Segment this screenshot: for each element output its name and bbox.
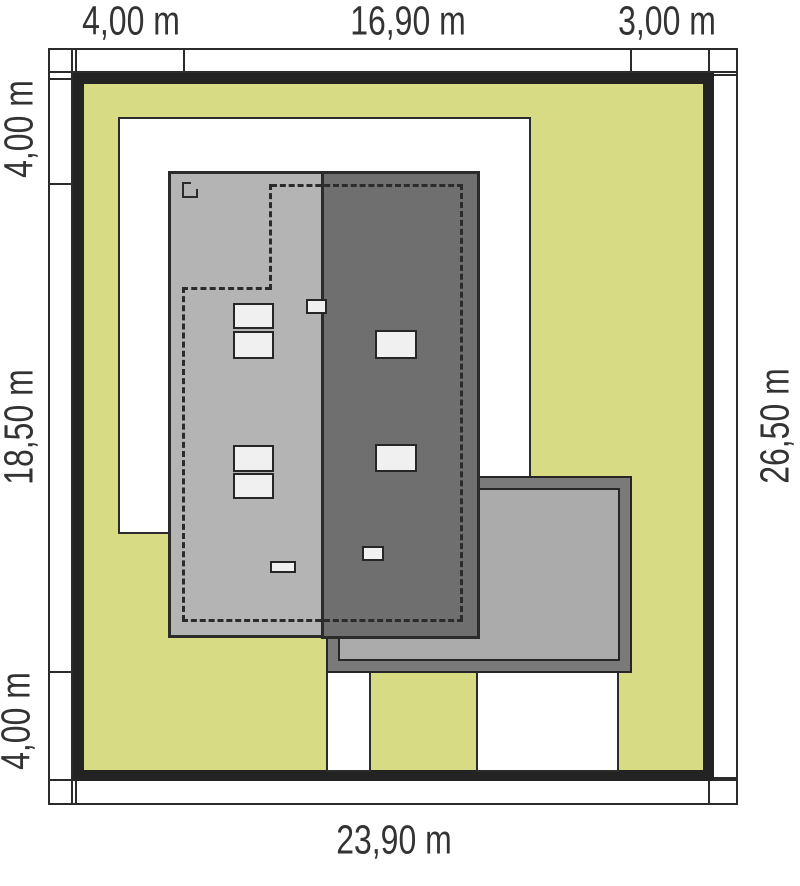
driveway-strip [476,671,619,772]
walkway-strip [326,671,371,772]
chimney [306,299,327,314]
dashed-floor-outline [460,184,463,621]
roof-vent [270,561,296,573]
dashed-floor-outline [182,287,185,621]
roof-window [233,331,274,359]
dimension-label-right: 26,50 m [755,368,796,484]
chimney-outline-gap [191,181,201,189]
site-plan: 4,00 m 16,90 m 3,00 m 4,00 m 18,50 m 4,0… [0,0,800,886]
house-roof-dark-section [321,171,480,639]
roof-window [233,445,274,472]
roof-window [375,330,417,359]
dimension-tick [48,78,73,80]
dashed-floor-outline [182,287,271,290]
house-roof-light-section [168,171,324,638]
dashed-floor-outline [269,184,272,290]
dashed-floor-outline [182,619,463,622]
dimension-label-top-middle: 16,90 m [350,1,466,42]
roof-vent [362,546,384,561]
dimension-tick [48,671,73,673]
dimension-label-top-right: 3,00 m [618,1,716,42]
dimension-label-bottom: 23,90 m [336,820,452,861]
roof-window [233,303,274,329]
dimension-label-left-middle: 18,50 m [0,369,40,485]
dimension-label-top-left: 4,00 m [82,1,180,42]
dimension-tick [708,48,710,73]
roof-window [233,473,274,499]
dashed-floor-outline [271,184,463,187]
dimension-tick [708,779,710,805]
dimension-tick [75,779,77,805]
dimension-label-left-top: 4,00 m [0,80,40,178]
dimension-tick [183,48,185,73]
dimension-tick [48,183,73,185]
dimension-tick [75,48,77,73]
dimension-tick [630,48,632,73]
dimension-label-left-bottom: 4,00 m [0,672,37,770]
roof-window [375,444,417,472]
chimney-outline [182,182,198,198]
